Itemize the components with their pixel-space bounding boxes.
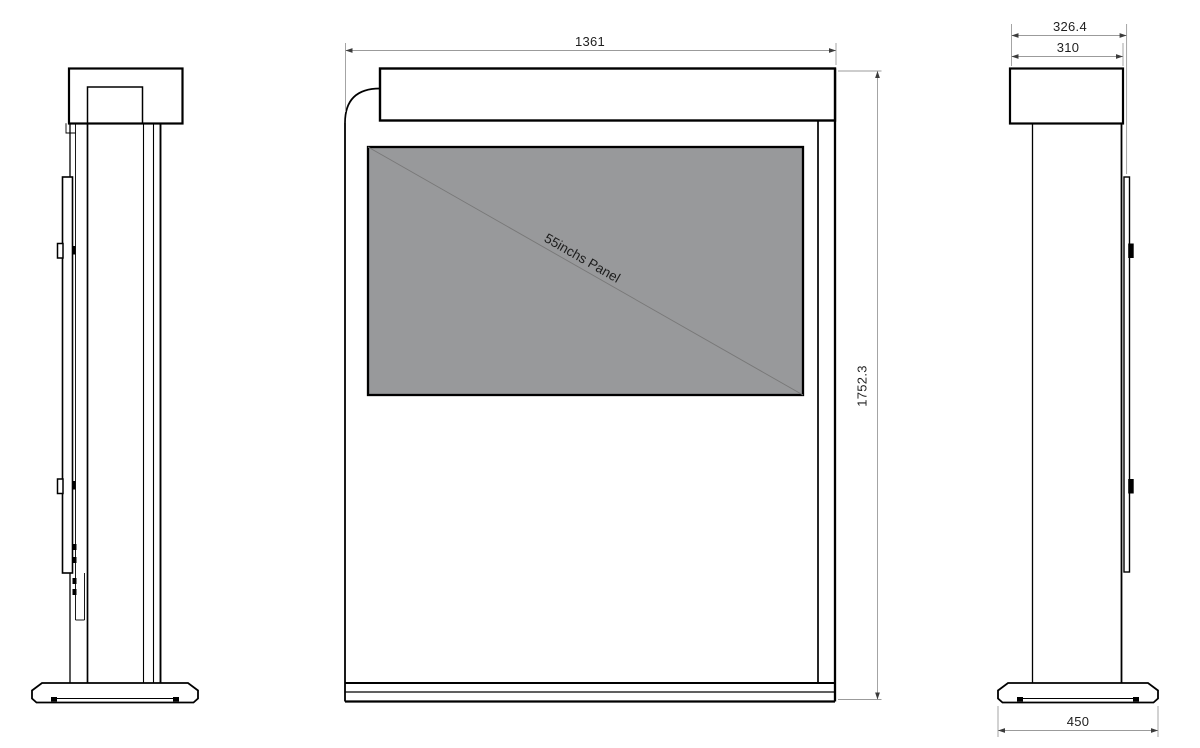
front-view-cap (380, 69, 835, 121)
left-view-column (66, 123, 161, 683)
right-view-panel-edge (1124, 177, 1134, 572)
right-view-column (1033, 123, 1122, 683)
dim-right-base-depth-label: 450 (1067, 714, 1090, 729)
right-view-clip-upper (1128, 244, 1134, 259)
dim-right-cabinet-depth: 310 (1012, 40, 1124, 66)
right-view-cap (1010, 69, 1123, 124)
dim-front-height: 1752.3 (838, 71, 882, 700)
kiosk-technical-drawing: 55inchs Panel 1361 (0, 0, 1200, 748)
left-view-panel-edge (58, 177, 77, 595)
right-view-base (998, 683, 1158, 703)
right-view-clip-lower (1128, 479, 1134, 494)
dim-right-base-depth: 450 (998, 706, 1158, 737)
front-view: 55inchs Panel (345, 69, 835, 702)
dim-front-height-label: 1752.3 (855, 365, 870, 407)
dim-right-cabinet-depth-label: 310 (1057, 40, 1080, 55)
right-side-view (998, 69, 1158, 703)
dim-right-overall-depth-label: 326.4 (1053, 19, 1087, 34)
left-view-clip-upper (58, 244, 64, 259)
display-panel: 55inchs Panel (368, 147, 803, 395)
left-view-base (32, 683, 198, 703)
dim-front-width-label: 1361 (575, 34, 605, 49)
left-view-cap (69, 69, 183, 124)
left-view-clip-lower (58, 479, 64, 494)
left-side-view (32, 69, 198, 703)
